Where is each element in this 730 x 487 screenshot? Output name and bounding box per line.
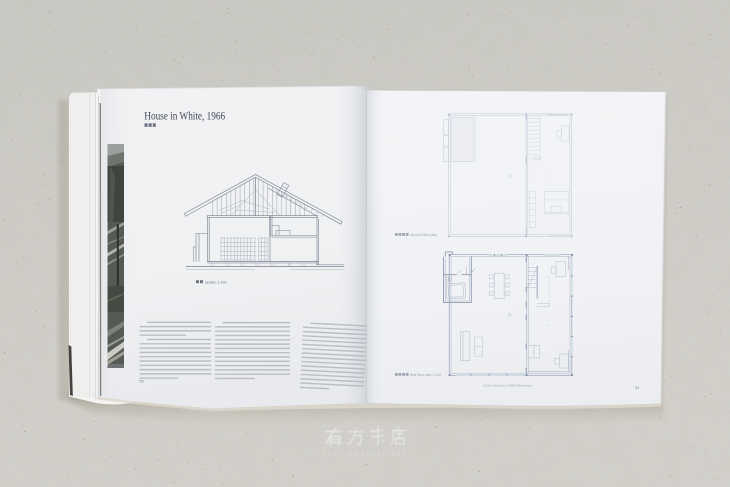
svg-text:first floor plan 1:100: first floor plan 1:100 bbox=[411, 373, 442, 377]
svg-text:House in White, 1966: House in White, 1966 bbox=[144, 111, 225, 123]
svg-text:POSITION BOOKSTORE: POSITION BOOKSTORE bbox=[323, 452, 407, 458]
svg-text:second floor plan: second floor plan bbox=[411, 233, 438, 237]
svg-text:1/16 exhibition 2008 Shenzh: 1/16 exhibition 2008 Shenzhen bbox=[483, 384, 533, 388]
svg-text:51: 51 bbox=[635, 386, 639, 390]
svg-text:section 1:100: section 1:100 bbox=[205, 280, 226, 284]
svg-text:50: 50 bbox=[140, 380, 144, 384]
